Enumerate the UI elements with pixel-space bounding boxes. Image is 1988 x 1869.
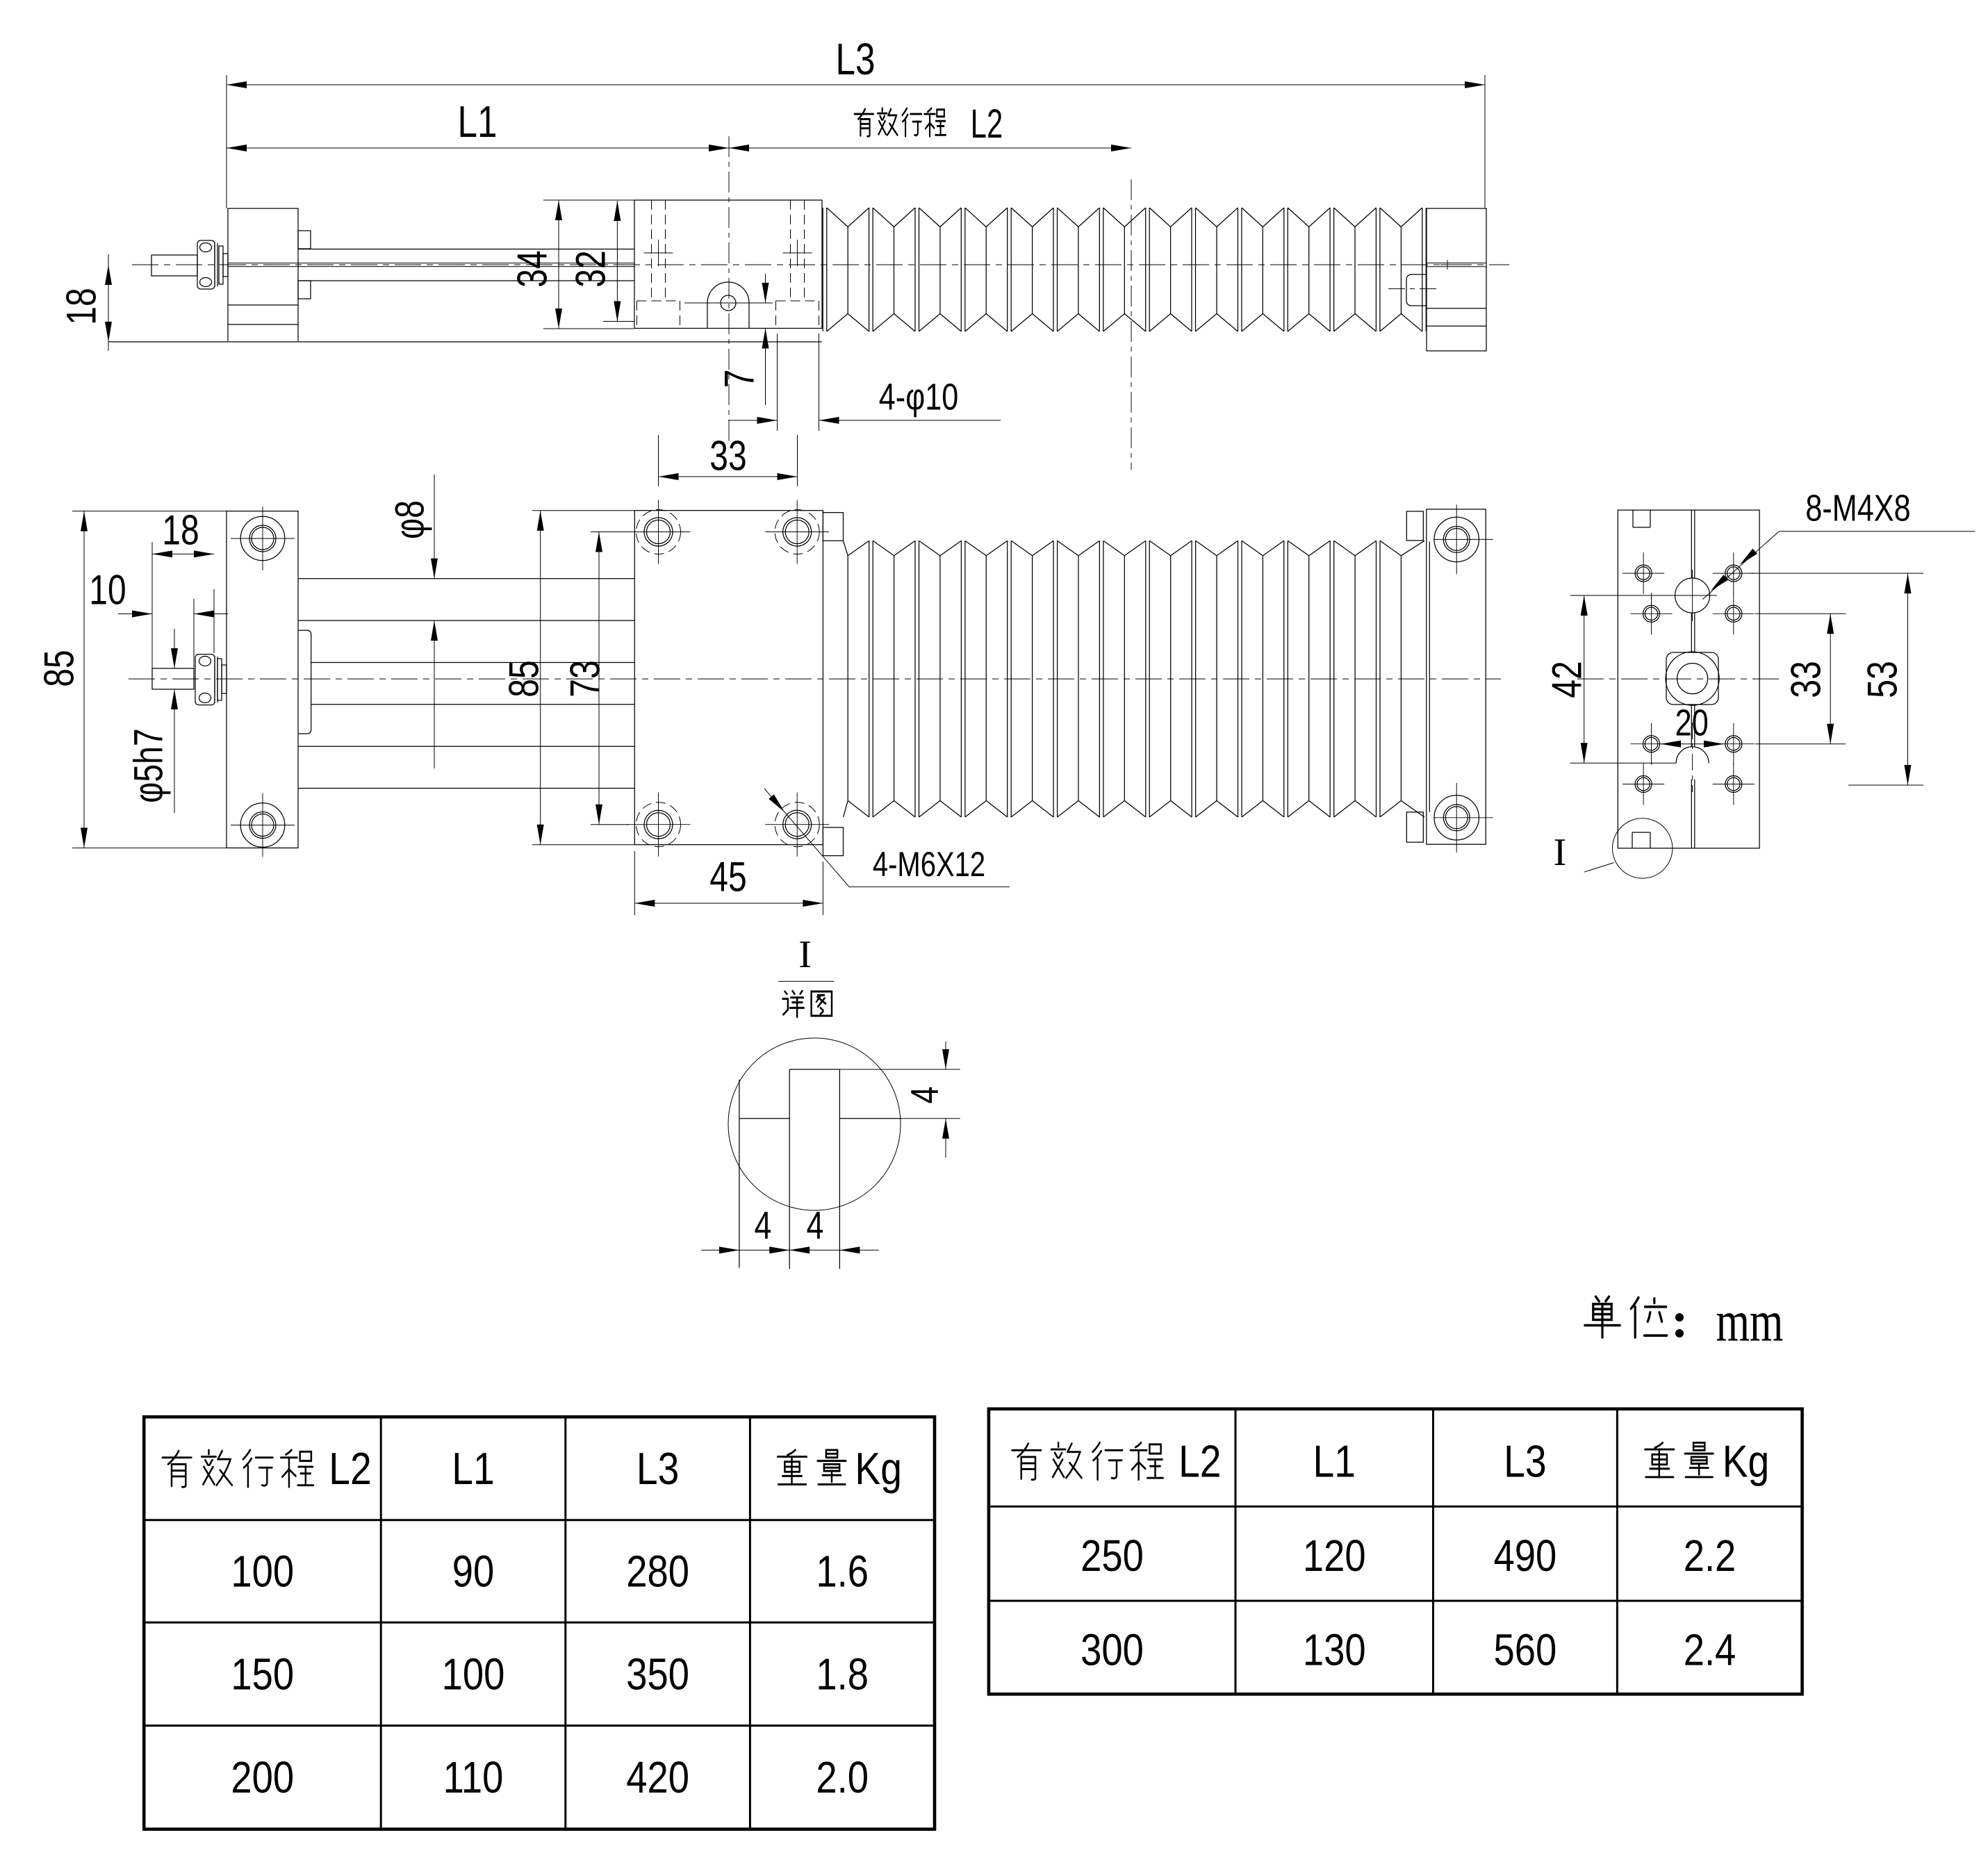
svg-text:φ5h7: φ5h7 <box>126 728 171 803</box>
svg-text:100: 100 <box>231 1546 294 1596</box>
svg-text:I: I <box>798 933 812 976</box>
svg-text:L2: L2 <box>1178 1435 1221 1486</box>
svg-text:2.0: 2.0 <box>816 1752 869 1802</box>
svg-text:33: 33 <box>709 432 746 479</box>
svg-text:4: 4 <box>903 1087 946 1104</box>
svg-text:L1: L1 <box>452 1443 494 1494</box>
svg-text:90: 90 <box>452 1546 494 1596</box>
svg-text:L3: L3 <box>836 35 876 85</box>
svg-text:Kg: Kg <box>855 1443 902 1494</box>
svg-text:φ8: φ8 <box>387 500 432 539</box>
svg-text:L1: L1 <box>1313 1435 1355 1486</box>
svg-text:I: I <box>1554 831 1567 874</box>
svg-text:2.2: 2.2 <box>1684 1531 1736 1581</box>
svg-text:10: 10 <box>89 566 126 613</box>
svg-text:350: 350 <box>626 1649 689 1699</box>
svg-text:L3: L3 <box>636 1443 679 1494</box>
svg-text:53: 53 <box>1859 661 1905 698</box>
svg-text:L2: L2 <box>329 1443 371 1494</box>
svg-text:42: 42 <box>1543 661 1590 698</box>
svg-text:20: 20 <box>1675 702 1709 744</box>
svg-text:4: 4 <box>755 1203 772 1247</box>
svg-text:85: 85 <box>35 650 82 686</box>
svg-text:130: 130 <box>1303 1624 1366 1674</box>
svg-text:Kg: Kg <box>1723 1435 1770 1486</box>
svg-text:18: 18 <box>162 507 199 553</box>
svg-text:200: 200 <box>231 1752 294 1802</box>
svg-text:mm: mm <box>1716 1288 1784 1353</box>
svg-text:150: 150 <box>231 1649 294 1699</box>
svg-text:4-M6X12: 4-M6X12 <box>873 845 985 884</box>
svg-text:100: 100 <box>442 1649 505 1699</box>
svg-text:18: 18 <box>58 288 104 324</box>
svg-text:73: 73 <box>561 660 608 697</box>
svg-text:45: 45 <box>709 853 746 900</box>
svg-text:33: 33 <box>1782 661 1829 698</box>
svg-text:7: 7 <box>716 370 762 388</box>
svg-text:L3: L3 <box>1504 1435 1546 1486</box>
svg-text:4: 4 <box>807 1203 824 1247</box>
svg-text:4-φ10: 4-φ10 <box>879 377 958 418</box>
svg-text:32: 32 <box>567 250 614 287</box>
svg-text:L2: L2 <box>971 101 1003 146</box>
svg-text:120: 120 <box>1303 1531 1366 1581</box>
svg-text:110: 110 <box>443 1752 504 1802</box>
svg-text:490: 490 <box>1494 1531 1557 1581</box>
svg-text:85: 85 <box>500 660 547 697</box>
svg-text:34: 34 <box>509 250 555 287</box>
svg-text:420: 420 <box>626 1752 689 1802</box>
svg-text:2.4: 2.4 <box>1684 1624 1736 1674</box>
svg-text:L1: L1 <box>458 98 498 147</box>
svg-text:250: 250 <box>1081 1531 1144 1581</box>
svg-text:300: 300 <box>1081 1624 1144 1674</box>
svg-text:280: 280 <box>626 1546 689 1596</box>
svg-text:1.8: 1.8 <box>816 1649 869 1699</box>
svg-text:8-M4X8: 8-M4X8 <box>1805 488 1910 529</box>
svg-text:1.6: 1.6 <box>816 1546 869 1596</box>
svg-text:560: 560 <box>1494 1624 1557 1674</box>
